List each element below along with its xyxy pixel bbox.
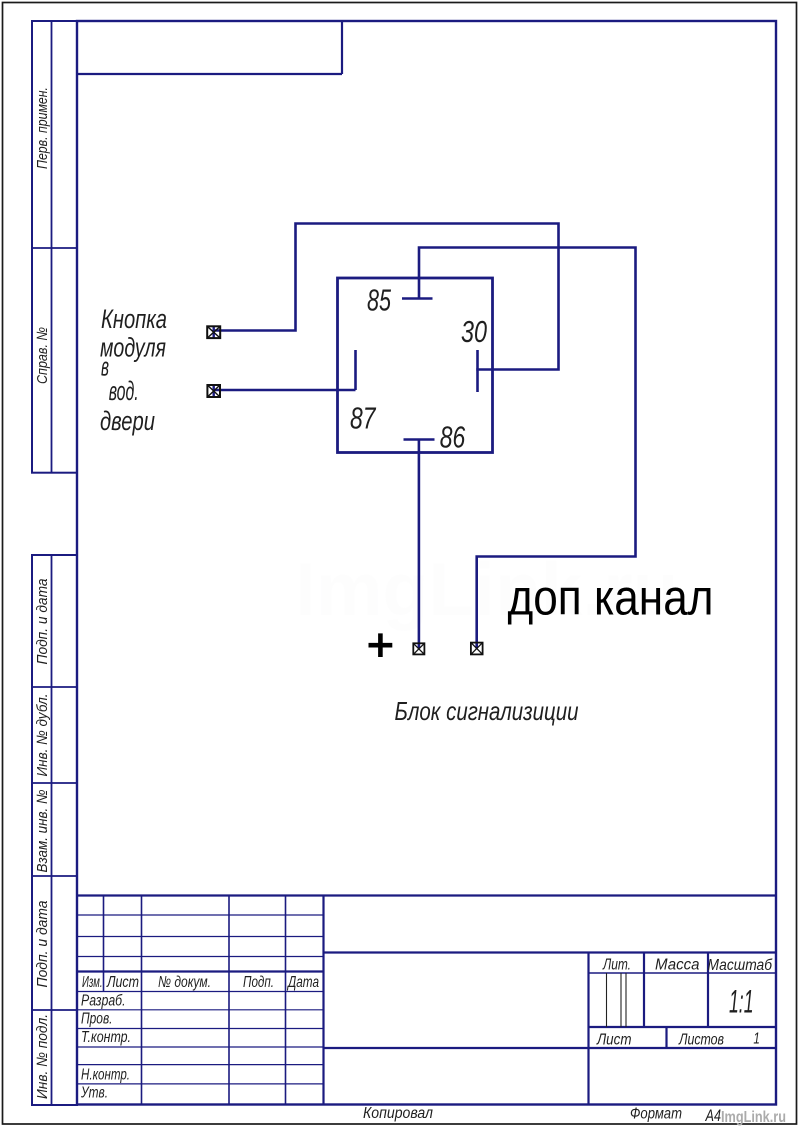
svg-text:1: 1	[753, 1031, 760, 1048]
svg-text:1:1: 1:1	[729, 984, 754, 1020]
svg-text:Подп.: Подп.	[243, 974, 274, 991]
svg-text:Масса: Масса	[655, 957, 700, 974]
svg-text:Формат: Формат	[630, 1106, 682, 1123]
svg-text:86: 86	[440, 420, 466, 455]
svg-text:Взам. инв. №: Взам. инв. №	[34, 790, 51, 873]
svg-text:Лит.: Лит.	[602, 957, 631, 974]
svg-text:Инв. № дубл.: Инв. № дубл.	[34, 694, 51, 777]
svg-text:Лист: Лист	[106, 974, 139, 991]
svg-text:модуля: модуля	[100, 333, 166, 363]
svg-text:ImgLink.ru: ImgLink.ru	[721, 1109, 786, 1126]
svg-text:Пров.: Пров.	[81, 1011, 113, 1028]
svg-text:Инв. № подл.: Инв. № подл.	[34, 1014, 51, 1099]
svg-text:Дата: Дата	[287, 974, 320, 991]
svg-text:Листов: Листов	[678, 1032, 724, 1049]
svg-text:двери: двери	[100, 406, 155, 436]
svg-text:Т.контр.: Т.контр.	[81, 1029, 131, 1046]
svg-text:Разраб.: Разраб.	[81, 993, 126, 1010]
svg-text:Масштаб: Масштаб	[708, 957, 774, 974]
svg-text:Блок сигнализиции: Блок сигнализиции	[395, 696, 579, 726]
svg-text:Копировал: Копировал	[363, 1105, 433, 1122]
svg-text:Лист: Лист	[596, 1032, 631, 1049]
svg-text:Изм.: Изм.	[82, 974, 103, 991]
svg-text:Утв.: Утв.	[80, 1085, 108, 1102]
svg-text:85: 85	[367, 283, 392, 318]
svg-text:доп канал: доп канал	[508, 570, 714, 626]
svg-text:Подп. и дата: Подп. и дата	[34, 579, 51, 665]
svg-text:Н.контр.: Н.контр.	[81, 1067, 130, 1084]
svg-text:87: 87	[350, 401, 377, 436]
svg-text:Перв. примен.: Перв. примен.	[34, 87, 51, 169]
svg-text:30: 30	[461, 314, 487, 349]
svg-text:вод.: вод.	[109, 376, 139, 406]
svg-text:Справ. №: Справ. №	[34, 327, 51, 384]
svg-text:Кнопка: Кнопка	[101, 304, 167, 334]
svg-text:А4: А4	[705, 1107, 721, 1125]
svg-text:Подп. и дата: Подп. и дата	[34, 901, 51, 988]
svg-text:№ докум.: № докум.	[158, 974, 211, 991]
